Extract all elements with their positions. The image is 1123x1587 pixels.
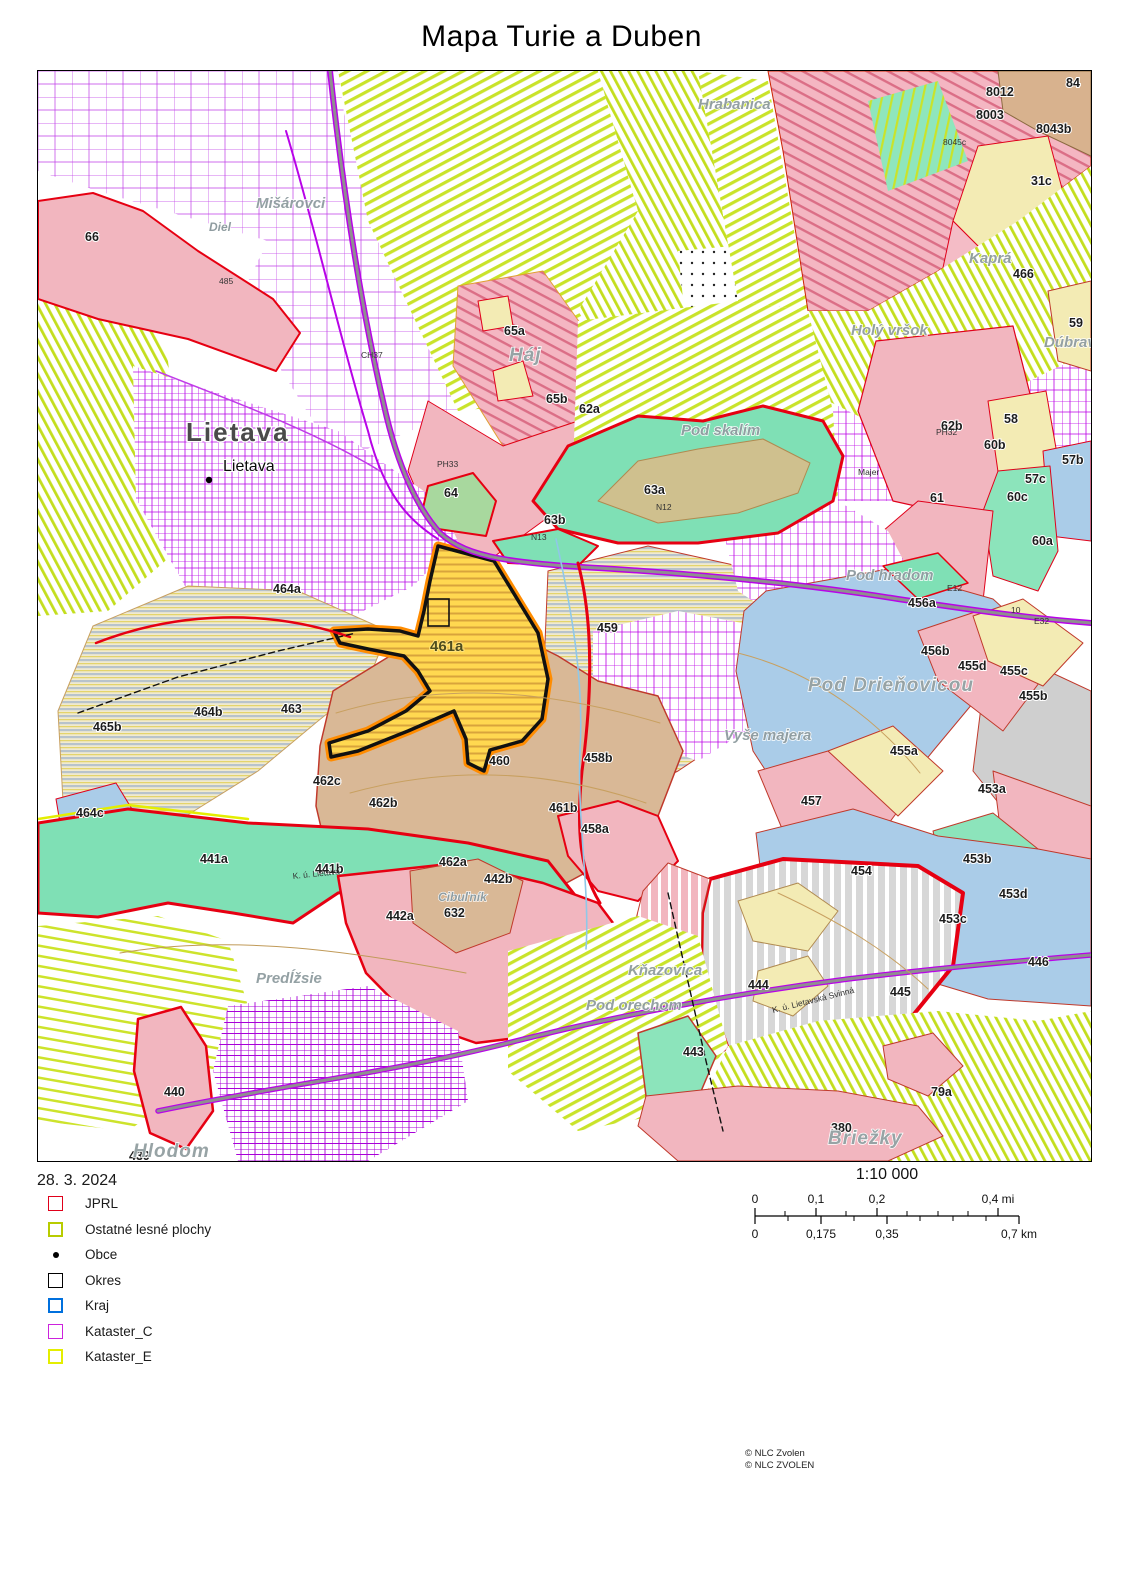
map-label: 442a: [386, 909, 415, 923]
copyright-line-1: © NLC Zvolen: [745, 1448, 814, 1460]
map-label: 466: [1013, 267, 1034, 281]
map-label: 464b: [194, 705, 223, 719]
map-label: 454: [851, 864, 872, 878]
map-label: 60b: [984, 438, 1006, 452]
map-label: PH33: [437, 459, 459, 469]
map-label: Briežky: [828, 1128, 903, 1149]
map-label: 453c: [939, 912, 967, 926]
legend-item-jprl: JPRL: [48, 1196, 348, 1211]
map-label: 462b: [369, 796, 398, 810]
map-label: 65a: [504, 324, 526, 338]
map-label: 458b: [584, 751, 613, 765]
map-label: 461a: [430, 638, 464, 655]
map-label: 63b: [544, 513, 566, 527]
map-label: 465b: [93, 720, 122, 734]
map-label: Lietava: [186, 417, 290, 447]
scalebar-label-mi: 0,2: [869, 1192, 886, 1206]
map-label: 485: [219, 276, 233, 286]
legend-item-kataster-c: Kataster_C: [48, 1324, 348, 1339]
map-label: 59: [1069, 316, 1083, 330]
legend-label: JPRL: [85, 1196, 118, 1211]
map-label: Holý vršok: [851, 322, 928, 339]
map-label: Dúbrava: [1044, 334, 1091, 351]
map-label: 8012: [986, 85, 1014, 99]
map-label: Kaprá: [969, 250, 1012, 267]
ostatne-lesne-plochy-swatch: [48, 1222, 63, 1237]
map-label: 462a: [439, 855, 468, 869]
map-label: CH37: [361, 350, 383, 360]
map-label: 57c: [1025, 472, 1046, 486]
teal-57c-60c: [983, 466, 1058, 591]
legend-label: Kraj: [85, 1298, 109, 1313]
map-label: 456b: [921, 644, 950, 658]
scale-ratio: 1:10 000: [752, 1166, 1022, 1184]
scalebar-label-mi: 0: [752, 1192, 759, 1206]
scale-block: 1:10 000 00,10,20,4 mi00,1750,350,7 km: [752, 1166, 1082, 1248]
map-label: 455d: [958, 659, 987, 673]
map-label: 79a: [931, 1085, 953, 1099]
map-label: 444: [748, 978, 769, 992]
map-label: 65b: [546, 392, 568, 406]
obec-dot: [206, 477, 212, 483]
map-label: Majer: [858, 467, 879, 477]
map-label: 632: [444, 906, 465, 920]
map-label: 57b: [1062, 453, 1084, 467]
map-label: 62a: [579, 402, 601, 416]
map-label: 8043b: [1036, 122, 1072, 136]
map-label: 443: [683, 1045, 704, 1059]
legend-label: Kataster_E: [85, 1349, 152, 1364]
date-label: 28. 3. 2024: [37, 1172, 117, 1190]
map-label: 460: [489, 754, 510, 768]
legend-item-ostatne-lesne-plochy: Ostatné lesné plochy: [48, 1222, 348, 1237]
map-label: 8045c: [943, 137, 967, 147]
legend: JPRLOstatné lesné plochyObceOkresKrajKat…: [48, 1196, 348, 1375]
map-label: Vyše majera: [724, 727, 811, 744]
map-label: 464a: [273, 582, 302, 596]
map-label: 464c: [76, 806, 104, 820]
map-label: PH32: [936, 427, 958, 437]
map-label: 453b: [963, 852, 992, 866]
kataster-e-swatch: [48, 1349, 63, 1364]
map-label: 455c: [1000, 664, 1028, 678]
map-label: 61: [930, 491, 944, 505]
map-label: E32: [1034, 616, 1049, 626]
jprl-swatch: [48, 1196, 63, 1211]
map-label: Pod skalím: [681, 422, 760, 439]
map-label: 459: [597, 621, 618, 635]
map-label: Háj: [509, 345, 542, 366]
map-label: 10: [1011, 605, 1021, 615]
map-label: 60a: [1032, 534, 1054, 548]
map-label: 440: [164, 1085, 185, 1099]
map-label: 441a: [200, 852, 229, 866]
map-label: 442b: [484, 872, 513, 886]
legend-item-okres: Okres: [48, 1273, 348, 1288]
map-label: 457: [801, 794, 822, 808]
legend-item-obce: Obce: [48, 1247, 348, 1262]
scalebar-label-km: 0,175: [806, 1227, 836, 1241]
page-title: Mapa Turie a Duben: [0, 20, 1123, 54]
map-label: Hrabanica: [698, 96, 771, 113]
map-label: 84: [1066, 76, 1080, 90]
legend-item-kraj: Kraj: [48, 1298, 348, 1313]
map-label: 461b: [549, 801, 578, 815]
map-label: 31c: [1031, 174, 1052, 188]
legend-label: Okres: [85, 1273, 121, 1288]
map-label: Predĺžsie: [256, 969, 322, 987]
map-label: N13: [531, 532, 547, 542]
map-label: Hlodom: [133, 1141, 210, 1161]
page: { "title": "Mapa Turie a Duben", "date":…: [0, 0, 1123, 1587]
legend-label: Obce: [85, 1247, 117, 1262]
map-label: N12: [656, 502, 672, 512]
map-label: 60c: [1007, 490, 1028, 504]
map-label: Diel: [209, 220, 232, 234]
map-label: Cibuľník: [438, 890, 488, 904]
map-label: 66: [85, 230, 99, 244]
map-label: Pod Drieňovicou: [808, 675, 974, 696]
scalebar-label-mi: 0,4 mi: [982, 1192, 1015, 1206]
map-label: 64: [444, 486, 458, 500]
map-label: Mišárovci: [256, 195, 326, 212]
map-label: E12: [947, 583, 962, 593]
obce-swatch: [53, 1252, 59, 1258]
map-canvas: 66MišárovciDiel485CH37Hrabanica848012800…: [38, 71, 1091, 1161]
scalebar-label-km: 0,7 km: [1001, 1227, 1037, 1241]
map-label: 446: [1028, 955, 1049, 969]
map-label: 453d: [999, 887, 1028, 901]
okres-swatch: [48, 1273, 63, 1288]
legend-label: Ostatné lesné plochy: [85, 1222, 211, 1237]
map-label: Lietava: [223, 458, 275, 475]
scale-bar: 00,10,20,4 mi00,1750,350,7 km: [752, 1186, 1082, 1248]
copyright-line-2: © NLC ZVOLEN: [745, 1460, 814, 1472]
map-label: 455a: [890, 744, 919, 758]
kraj-swatch: [48, 1298, 63, 1313]
legend-label: Kataster_C: [85, 1324, 153, 1339]
map-label: Kňazovica: [628, 962, 702, 979]
map-label: 58: [1004, 412, 1018, 426]
map-label: 8003: [976, 108, 1004, 122]
map-label: 463: [281, 702, 302, 716]
kataster-c-swatch: [48, 1324, 63, 1339]
map-frame: 66MišárovciDiel485CH37Hrabanica848012800…: [37, 70, 1092, 1162]
map-label: 455b: [1019, 689, 1048, 703]
scalebar-label-km: 0: [752, 1227, 759, 1241]
map-label: Pod hradom: [846, 567, 934, 584]
map-label: Pod orechom: [586, 997, 682, 1014]
map-label: 63a: [644, 483, 666, 497]
legend-item-kataster-e: Kataster_E: [48, 1349, 348, 1364]
scalebar-label-mi: 0,1: [808, 1192, 825, 1206]
copyright: © NLC Zvolen © NLC ZVOLEN: [745, 1448, 814, 1472]
map-label: 453a: [978, 782, 1007, 796]
map-label: 456a: [908, 596, 937, 610]
map-label: 458a: [581, 822, 610, 836]
map-label: 462c: [313, 774, 341, 788]
map-label: 445: [890, 985, 911, 999]
scalebar-label-km: 0,35: [875, 1227, 899, 1241]
